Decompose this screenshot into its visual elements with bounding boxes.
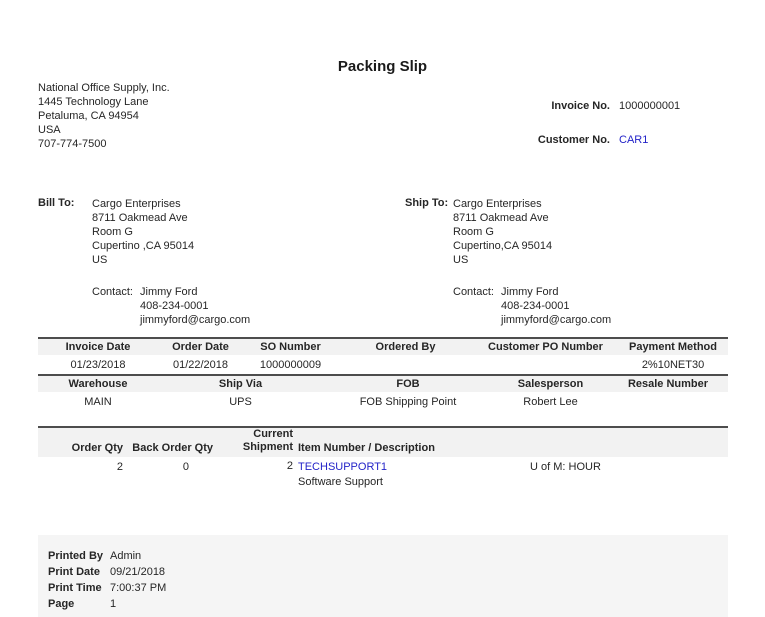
salesperson-value: Robert Lee <box>493 396 608 408</box>
invoice-number-value: 1000000001 <box>619 100 680 112</box>
printed-by-value: Admin <box>110 548 141 564</box>
order-info-header-row-2: Warehouse Ship Via FOB Salesperson Resal… <box>38 374 728 392</box>
order-info-value-row-2: MAIN UPS FOB Shipping Point Robert Lee <box>38 392 728 411</box>
bill-to-address-line: Room G <box>92 225 250 239</box>
column-header: Salesperson <box>493 378 608 390</box>
bill-contact-name: Jimmy Ford <box>140 286 197 298</box>
column-header: Order Date <box>158 341 243 353</box>
table-row: 2 0 2 TECHSUPPORT1 Software Support U of… <box>38 457 728 490</box>
company-name: National Office Supply, Inc. <box>38 81 170 95</box>
warehouse-value: MAIN <box>38 396 158 408</box>
column-header: Resale Number <box>608 378 728 390</box>
unit-of-measure: U of M: HOUR <box>528 460 723 490</box>
column-header: Item Number / Description <box>293 442 528 454</box>
company-address-line: Petaluma, CA 94954 <box>38 109 170 123</box>
bill-contact-email: jimmyford@cargo.com <box>140 313 250 327</box>
line-items-table: Order Qty Back Order Qty Current Shipmen… <box>38 426 728 490</box>
print-date-label: Print Date <box>48 564 110 580</box>
column-header: Ordered By <box>338 341 473 353</box>
print-time-value: 7:00:37 PM <box>110 580 166 596</box>
print-time-row: Print Time 7:00:37 PM <box>38 580 728 596</box>
ship-to-block: Cargo Enterprises 8711 Oakmead Ave Room … <box>453 197 611 327</box>
bill-to-block: Cargo Enterprises 8711 Oakmead Ave Room … <box>92 197 250 327</box>
column-header: SO Number <box>243 341 338 353</box>
column-header: Invoice Date <box>38 341 158 353</box>
item-number-link[interactable]: TECHSUPPORT1 <box>298 460 528 475</box>
column-header: FOB <box>323 378 493 390</box>
column-header: Payment Method <box>618 341 728 353</box>
company-address-line: USA <box>38 123 170 137</box>
order-date-value: 01/22/2018 <box>158 359 243 371</box>
current-shipment-value: 2 <box>213 460 293 490</box>
ship-to-address-line: Cupertino,CA 95014 <box>453 239 611 253</box>
order-qty-value: 2 <box>38 460 123 490</box>
ship-to-address-line: 8711 Oakmead Ave <box>453 211 611 225</box>
page-number-value: 1 <box>110 596 116 612</box>
packing-slip-page: Packing Slip National Office Supply, Inc… <box>0 0 765 617</box>
bill-to-contact: Contact:Jimmy Ford 408-234-0001 jimmyfor… <box>92 285 250 327</box>
print-time-label: Print Time <box>48 580 110 596</box>
customer-number-row: Customer No. CAR1 <box>430 134 730 146</box>
column-header: Current Shipment <box>213 428 293 454</box>
invoice-number-row: Invoice No. 1000000001 <box>430 100 730 112</box>
so-number-value: 1000000009 <box>243 359 338 371</box>
column-header: Order Qty <box>38 442 123 454</box>
printed-by-row: Printed By Admin <box>38 548 728 564</box>
ship-contact-phone: 408-234-0001 <box>501 299 611 313</box>
bill-contact-label: Contact: <box>92 285 140 299</box>
invoice-number-label: Invoice No. <box>430 100 610 112</box>
ship-contact-email: jimmyford@cargo.com <box>501 313 611 327</box>
document-refs: Invoice No. 1000000001 Customer No. CAR1 <box>430 100 730 168</box>
column-header: Customer PO Number <box>473 341 618 353</box>
bill-contact-phone: 408-234-0001 <box>140 299 250 313</box>
line-items-header-row: Order Qty Back Order Qty Current Shipmen… <box>38 426 728 457</box>
back-order-qty-value: 0 <box>123 460 213 490</box>
column-header: Ship Via <box>158 378 323 390</box>
bill-to-country: US <box>92 253 250 267</box>
ship-to-contact: Contact:Jimmy Ford 408-234-0001 jimmyfor… <box>453 285 611 327</box>
bill-to-label: Bill To: <box>38 197 74 209</box>
page-title: Packing Slip <box>0 58 765 75</box>
order-info-value-row-1: 01/23/2018 01/22/2018 1000000009 2%10NET… <box>38 355 728 374</box>
page-number-label: Page <box>48 596 110 612</box>
fob-value: FOB Shipping Point <box>323 396 493 408</box>
printed-by-label: Printed By <box>48 548 110 564</box>
item-description: Software Support <box>298 475 528 490</box>
order-info-table: Invoice Date Order Date SO Number Ordere… <box>38 337 728 411</box>
order-info-header-row-1: Invoice Date Order Date SO Number Ordere… <box>38 337 728 355</box>
print-date-row: Print Date 09/21/2018 <box>38 564 728 580</box>
customer-number-link[interactable]: CAR1 <box>619 134 648 146</box>
ship-contact-label: Contact: <box>453 285 501 299</box>
customer-number-label: Customer No. <box>430 134 610 146</box>
page-number-row: Page 1 <box>38 596 728 612</box>
company-address-block: National Office Supply, Inc. 1445 Techno… <box>38 81 170 151</box>
company-address-line: 1445 Technology Lane <box>38 95 170 109</box>
ship-contact-name: Jimmy Ford <box>501 286 558 298</box>
company-phone: 707-774-7500 <box>38 137 170 151</box>
bill-to-name: Cargo Enterprises <box>92 197 250 211</box>
ship-to-name: Cargo Enterprises <box>453 197 611 211</box>
column-header: Warehouse <box>38 378 158 390</box>
ship-to-country: US <box>453 253 611 267</box>
column-header: Back Order Qty <box>123 442 213 454</box>
ship-via-value: UPS <box>158 396 323 408</box>
ship-to-address-line: Room G <box>453 225 611 239</box>
payment-method-value: 2%10NET30 <box>618 359 728 371</box>
bill-to-address-line: 8711 Oakmead Ave <box>92 211 250 225</box>
item-cell: TECHSUPPORT1 Software Support <box>293 460 528 490</box>
ship-to-label: Ship To: <box>405 197 448 209</box>
print-date-value: 09/21/2018 <box>110 564 165 580</box>
print-info-footer: Printed By Admin Print Date 09/21/2018 P… <box>38 535 728 617</box>
bill-to-address-line: Cupertino ,CA 95014 <box>92 239 250 253</box>
invoice-date-value: 01/23/2018 <box>38 359 158 371</box>
